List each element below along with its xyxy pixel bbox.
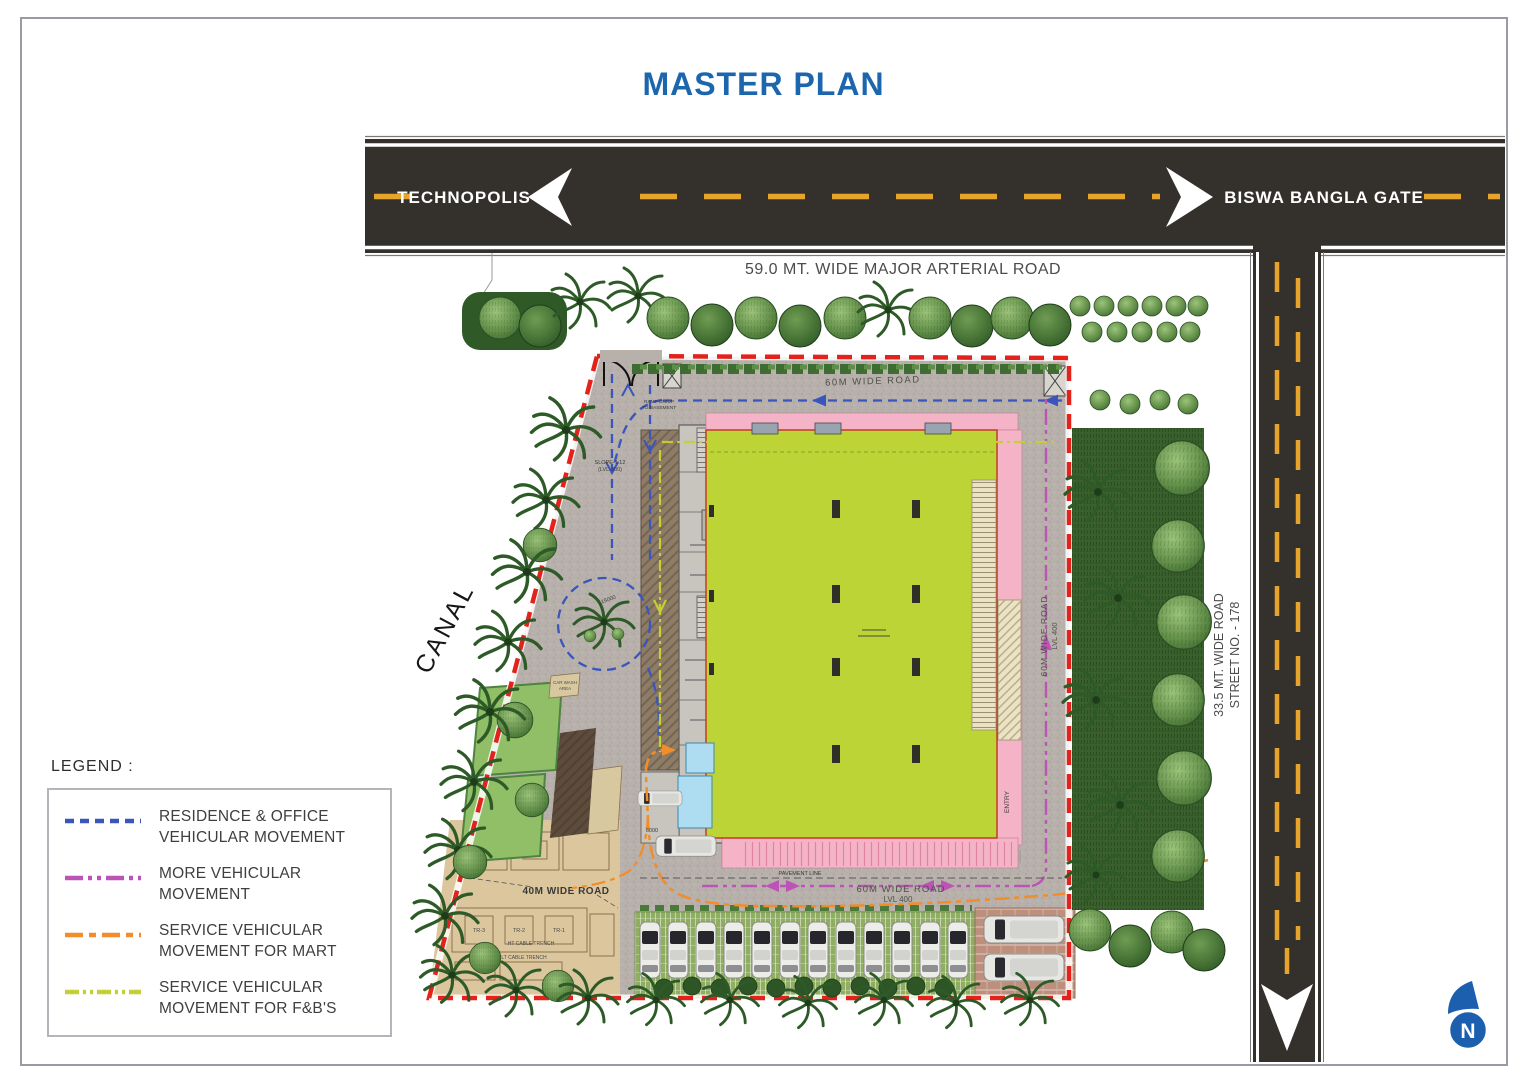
legend-label: MORE VEHICULAR MOVEMENT <box>159 863 301 905</box>
tree-icon <box>1152 830 1205 883</box>
arterial-road: TECHNOPOLIS BISWA BANGLA GATE <box>365 137 1505 256</box>
legend-swatch <box>63 806 159 831</box>
bush-icon <box>907 977 925 995</box>
car-wash-label: CAR WASH <box>553 680 577 685</box>
tree-icon <box>1109 925 1151 967</box>
legend-item-service-fnb: SERVICE VEHICULAR MOVEMENT FOR F&B'S <box>63 977 380 1019</box>
legend-item-more-vehicular: MORE VEHICULAR MOVEMENT <box>63 863 380 905</box>
gate-opening <box>600 350 662 362</box>
east-hedge-rows <box>1070 296 1208 414</box>
hedge-icon <box>1070 296 1090 316</box>
legend: LEGEND : RESIDENCE & OFFICE VEHICULAR MO… <box>47 758 392 1037</box>
tree-icon <box>1157 751 1212 806</box>
hedge-icon <box>1166 296 1186 316</box>
tree-icon <box>1157 595 1212 650</box>
car <box>948 922 968 978</box>
dock-bay-blue <box>678 776 712 828</box>
legend-label-line2: MOVEMENT <box>159 884 301 905</box>
tree-icon <box>515 783 549 817</box>
tree-icon <box>1183 929 1225 971</box>
van <box>984 916 1064 943</box>
hedge-icon <box>1142 296 1162 316</box>
transformer-label: TR-1 <box>553 928 565 934</box>
legend-label-line1: SERVICE VEHICULAR <box>159 920 337 941</box>
car-wash-label2: AREA <box>559 686 571 691</box>
car <box>780 922 800 978</box>
hedge-icon <box>1178 394 1198 414</box>
mart-hall <box>706 430 997 838</box>
car <box>920 922 940 978</box>
legend-item-residence-office: RESIDENCE & OFFICE VEHICULAR MOVEMENT <box>63 806 380 848</box>
van <box>984 954 1064 981</box>
tree-icon <box>542 970 574 1002</box>
tree-icon <box>779 305 821 347</box>
car <box>640 922 660 978</box>
legend-label: SERVICE VEHICULAR MOVEMENT FOR MART <box>159 920 337 962</box>
tree-icon <box>1152 520 1205 573</box>
hedge-icon <box>1150 390 1170 410</box>
car <box>892 922 912 978</box>
master-plan-sheet: MASTER PLAN <box>0 0 1527 1080</box>
hedge-icon <box>1082 322 1102 342</box>
tree-icon <box>991 297 1033 339</box>
ramp-label-1: RAMP DN/UP <box>644 399 674 405</box>
street-road-surface <box>1253 243 1321 1062</box>
legend-label-line1: MORE VEHICULAR <box>159 863 301 884</box>
tree-icon <box>691 304 733 346</box>
tree-icon <box>469 942 501 974</box>
compass-n-label: N <box>1460 1020 1475 1043</box>
basement-ramp-pad <box>588 766 622 834</box>
slope-level-label: (LVL-300) <box>598 467 622 473</box>
hedge-icon <box>1157 322 1177 342</box>
legend-label-line2: VEHICULAR MOVEMENT <box>159 827 345 848</box>
bush-icon <box>823 979 841 997</box>
ramp-label-2: TO BASEMENT <box>642 405 676 411</box>
tree-icon <box>453 845 487 879</box>
car <box>724 922 744 978</box>
transformer-label: TR-3 <box>473 928 485 934</box>
legend-item-service-mart: SERVICE VEHICULAR MOVEMENT FOR MART <box>63 920 380 962</box>
hedge-icon <box>612 628 624 640</box>
ht-trench-label: HT CABLE TRENCH <box>508 941 555 947</box>
service-truck <box>656 836 716 856</box>
destination-west-label: TECHNOPOLIS <box>397 188 531 207</box>
hedge-icon <box>1132 322 1152 342</box>
tree-icon <box>479 297 521 339</box>
service-truck <box>638 791 682 806</box>
legend-label-line1: SERVICE VEHICULAR <box>159 977 337 998</box>
destination-east-label: BISWA BANGLA GATE <box>1224 188 1424 207</box>
hedge-icon <box>1107 322 1127 342</box>
tree-icon <box>735 297 777 339</box>
street-number: STREET NO. - 178 <box>1228 602 1242 709</box>
car <box>668 922 688 978</box>
legend-label: SERVICE VEHICULAR MOVEMENT FOR F&B'S <box>159 977 337 1019</box>
bush-icon <box>767 979 785 997</box>
hedge-icon <box>1090 390 1110 410</box>
legend-box: RESIDENCE & OFFICE VEHICULAR MOVEMENT MO… <box>47 788 392 1037</box>
bush-icon <box>683 977 701 995</box>
tree-icon <box>523 528 557 562</box>
dock-bay-blue <box>686 743 714 773</box>
north-compass: N <box>1448 981 1487 1049</box>
lt-trench-label: LT CABLE TRENCH <box>501 955 547 961</box>
street-178-road <box>1251 243 1324 1062</box>
tree-icon <box>824 297 866 339</box>
tree-icon <box>647 297 689 339</box>
legend-swatch <box>63 977 159 1002</box>
tree-icon <box>951 305 993 347</box>
tree-icon <box>1155 441 1210 496</box>
car <box>836 922 856 978</box>
tree-icon <box>519 305 561 347</box>
legend-label-line2: MOVEMENT FOR MART <box>159 941 337 962</box>
south-road-label: 60M WIDE ROAD <box>856 884 945 895</box>
building-complex <box>604 360 1066 868</box>
legend-swatch <box>63 863 159 888</box>
yard-road-label: 40M WIDE ROAD <box>522 886 609 897</box>
car <box>864 922 884 978</box>
hedge-icon <box>1094 296 1114 316</box>
legend-label-line2: MOVEMENT FOR F&B'S <box>159 998 337 1019</box>
street-178-label: 33.5 MT. WIDE ROAD STREET NO. - 178 <box>1212 593 1242 717</box>
tree-icon <box>909 297 951 339</box>
dock-ramp-east-hatch <box>998 600 1021 740</box>
legend-swatch <box>63 920 159 945</box>
hedge-icon <box>1188 296 1208 316</box>
dim-label: 6000 <box>646 828 658 834</box>
tree-icon <box>1152 674 1205 727</box>
legend-heading: LEGEND : <box>51 758 392 776</box>
palm-icon <box>858 282 918 336</box>
dock-strip-inner-ticks <box>972 480 996 730</box>
hedge-icon <box>1118 296 1138 316</box>
car <box>752 922 772 978</box>
pink-band-south-ticks <box>740 840 1012 866</box>
tree-icon <box>1029 304 1071 346</box>
legend-label-line1: RESIDENCE & OFFICE <box>159 806 345 827</box>
street-name: 33.5 MT. WIDE ROAD <box>1212 593 1226 717</box>
compass-pointer-icon <box>1448 981 1479 1014</box>
entry-label: ENTRY <box>1004 790 1011 813</box>
car <box>696 922 716 978</box>
hedge-icon <box>1120 394 1140 414</box>
east-road-level: LVL 400 <box>1050 622 1059 649</box>
legend-label: RESIDENCE & OFFICE VEHICULAR MOVEMENT <box>159 806 345 848</box>
hedge-icon <box>584 630 596 642</box>
pavement-line-label: PAVEMENT LINE <box>778 871 821 877</box>
south-road-level: LVL 400 <box>884 895 913 904</box>
slope-label: SLOPE-1:12 <box>595 460 626 466</box>
top-tree-row <box>479 268 1071 347</box>
car <box>808 922 828 978</box>
east-road-label: 60M WIDE ROAD <box>1039 595 1049 676</box>
arterial-road-caption: 59.0 MT. WIDE MAJOR ARTERIAL ROAD <box>745 261 1061 278</box>
tree-icon <box>1069 909 1111 951</box>
hedge-icon <box>1180 322 1200 342</box>
transformer-label: TR-2 <box>513 928 525 934</box>
canal-label: CANAL <box>409 578 480 678</box>
